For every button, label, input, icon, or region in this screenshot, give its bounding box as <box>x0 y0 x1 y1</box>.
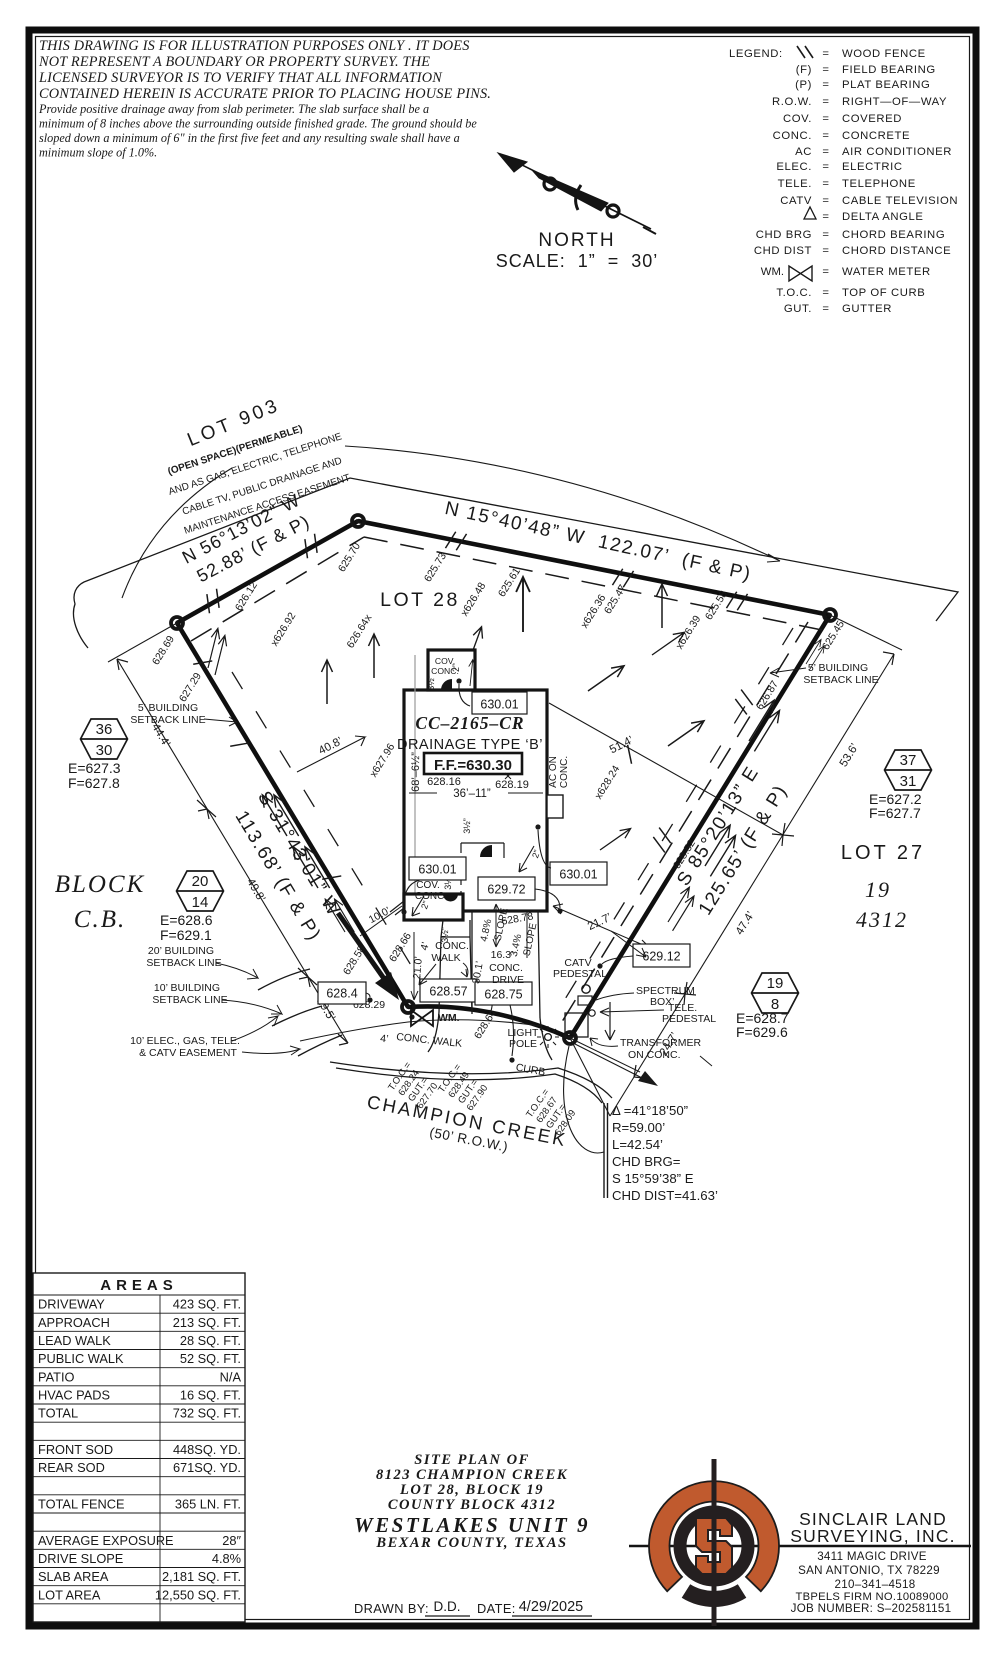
svg-text:36’–11”: 36’–11” <box>453 788 491 800</box>
svg-text:ELEC.: ELEC. <box>776 161 812 173</box>
svg-text:Δ =41°18’50”: Δ =41°18’50” <box>612 1103 688 1118</box>
svg-text:SAN ANTONIO, TX 78229: SAN ANTONIO, TX 78229 <box>798 1564 940 1577</box>
svg-text:CONC.: CONC. <box>415 891 447 902</box>
svg-text:WATER METER: WATER METER <box>842 266 931 278</box>
svg-text:WESTLAKES UNIT 9: WESTLAKES UNIT 9 <box>354 1513 590 1537</box>
svg-text:sloped down a minimum of 6" in: sloped down a minimum of 6" in the first… <box>39 131 460 145</box>
svg-text:LEGEND:: LEGEND: <box>729 48 783 60</box>
svg-text:4/29/2025: 4/29/2025 <box>519 1599 584 1615</box>
svg-text:CABLE TELEVISION: CABLE TELEVISION <box>842 195 958 207</box>
svg-text:28″: 28″ <box>222 1533 241 1548</box>
svg-text:SETBACK LINE: SETBACK LINE <box>146 957 221 969</box>
svg-text:APPROACH: APPROACH <box>38 1315 110 1330</box>
svg-text:LICENSED SURVEYOR IS TO VERIFY: LICENSED SURVEYOR IS TO VERIFY THAT ALL … <box>38 70 443 86</box>
svg-text:Provide positive drainage away: Provide positive drainage away from slab… <box>38 102 429 116</box>
svg-text:F.F.=630.30: F.F.=630.30 <box>434 757 512 774</box>
svg-text:=: = <box>822 266 829 278</box>
svg-text:SLAB AREA: SLAB AREA <box>38 1569 109 1584</box>
svg-text:AC: AC <box>795 146 812 158</box>
svg-text:RIGHT—OF—WAY: RIGHT—OF—WAY <box>842 96 947 108</box>
svg-text:28 SQ. FT.: 28 SQ. FT. <box>180 1333 241 1348</box>
svg-text:LOT 28, BLOCK 19: LOT 28, BLOCK 19 <box>399 1482 544 1498</box>
svg-text:20: 20 <box>192 873 209 890</box>
svg-text:ON CONC.: ON CONC. <box>628 1049 681 1061</box>
svg-text:CHD DIST=41.63’: CHD DIST=41.63’ <box>612 1188 718 1203</box>
svg-text:=: = <box>822 287 829 299</box>
svg-text:2”: 2” <box>451 664 461 672</box>
svg-text:(P): (P) <box>795 79 812 91</box>
svg-text:630.01: 630.01 <box>418 863 456 877</box>
svg-text:F=629.6: F=629.6 <box>736 1024 788 1040</box>
svg-text:F=627.7: F=627.7 <box>869 805 921 821</box>
svg-text:628.19: 628.19 <box>495 779 529 791</box>
svg-text:=: = <box>822 161 829 173</box>
svg-text:T.O.C.: T.O.C. <box>776 287 812 299</box>
svg-text:F=627.8: F=627.8 <box>68 775 120 791</box>
svg-text:N/A: N/A <box>220 1369 242 1384</box>
svg-text:423 SQ. FT.: 423 SQ. FT. <box>173 1297 241 1312</box>
svg-text:DRAINAGE TYPE ‘B’: DRAINAGE TYPE ‘B’ <box>397 737 543 753</box>
svg-text:COV.: COV. <box>783 113 812 125</box>
svg-text:=: = <box>822 113 829 125</box>
svg-text:=: = <box>822 64 829 76</box>
svg-text:AVERAGE EXPOSURE: AVERAGE EXPOSURE <box>38 1533 174 1548</box>
svg-text:SITE PLAN OF: SITE PLAN OF <box>414 1452 530 1468</box>
svg-text:=: = <box>822 130 829 142</box>
svg-text:CHD DIST: CHD DIST <box>754 245 812 257</box>
svg-text:LEAD WALK: LEAD WALK <box>38 1333 111 1348</box>
svg-text:2,181 SQ. FT.: 2,181 SQ. FT. <box>162 1569 241 1584</box>
svg-text:37: 37 <box>900 752 917 769</box>
svg-text:628.57: 628.57 <box>429 985 467 999</box>
svg-text:F=629.1: F=629.1 <box>160 927 212 943</box>
svg-text:DRIVE SLOPE: DRIVE SLOPE <box>38 1551 123 1566</box>
svg-text:12,550 SQ. FT.: 12,550 SQ. FT. <box>155 1587 241 1602</box>
svg-text:AIR CONDITIONER: AIR CONDITIONER <box>842 146 952 158</box>
svg-text:SETBACK LINE: SETBACK LINE <box>130 714 205 726</box>
svg-text:CATV: CATV <box>780 195 812 207</box>
svg-text:CONC.: CONC. <box>773 130 812 142</box>
svg-text:L=42.54’: L=42.54’ <box>612 1137 663 1152</box>
svg-text:COVERED: COVERED <box>842 113 902 125</box>
svg-text:TRANSFORMER: TRANSFORMER <box>620 1037 702 1049</box>
svg-text:WOOD FENCE: WOOD FENCE <box>842 48 926 60</box>
svg-text:DRIVEWAY: DRIVEWAY <box>38 1297 105 1312</box>
svg-text:PLAT BEARING: PLAT BEARING <box>842 79 930 91</box>
svg-text:21.0’: 21.0’ <box>411 956 425 980</box>
svg-text:GUT.: GUT. <box>784 303 812 315</box>
svg-text:& CATV EASEMENT: & CATV EASEMENT <box>139 1047 237 1059</box>
svg-text:628.75: 628.75 <box>484 988 522 1002</box>
svg-text:629.72: 629.72 <box>487 883 525 897</box>
svg-text:REAR SOD: REAR SOD <box>38 1460 105 1475</box>
svg-text:CONCRETE: CONCRETE <box>842 130 910 142</box>
svg-text:TOTAL FENCE: TOTAL FENCE <box>38 1497 125 1512</box>
svg-text:SETBACK LINE: SETBACK LINE <box>803 674 878 686</box>
svg-text:TELEPHONE: TELEPHONE <box>842 178 916 190</box>
svg-text:ELECTRIC: ELECTRIC <box>842 161 903 173</box>
svg-text:=: = <box>822 211 829 223</box>
svg-text:GUTTER: GUTTER <box>842 303 892 315</box>
svg-text:PEDESTAL: PEDESTAL <box>553 968 607 980</box>
svg-text:14: 14 <box>192 894 209 911</box>
svg-text:TOP OF CURB: TOP OF CURB <box>842 287 925 299</box>
svg-text:AC ON: AC ON <box>548 756 559 788</box>
svg-text:3411 MAGIC DRIVE: 3411 MAGIC DRIVE <box>817 1550 927 1563</box>
svg-text:=: = <box>822 48 829 60</box>
svg-text:PEDESTAL: PEDESTAL <box>662 1013 716 1025</box>
svg-text:WM.: WM. <box>438 1012 460 1024</box>
svg-text:CONTAINED HEREIN IS ACCURATE P: CONTAINED HEREIN IS ACCURATE PRIOR TO PL… <box>39 86 491 102</box>
svg-text:3½”: 3½” <box>426 675 436 691</box>
svg-text:10’ ELEC., GAS, TELE.: 10’ ELEC., GAS, TELE. <box>130 1035 240 1047</box>
svg-text:CC–2165–CR: CC–2165–CR <box>415 713 524 733</box>
svg-text:CHD BRG=: CHD BRG= <box>612 1154 681 1169</box>
svg-text:SETBACK LINE: SETBACK LINE <box>152 994 227 1006</box>
svg-text:=: = <box>822 96 829 108</box>
svg-text:D.D.: D.D. <box>434 1599 461 1614</box>
svg-text:5’ BUILDING: 5’ BUILDING <box>808 662 868 674</box>
svg-text:4312: 4312 <box>856 907 908 932</box>
svg-text:COV.: COV. <box>416 880 440 891</box>
svg-text:minimum of 8 inches above the: minimum of 8 inches above the surroundin… <box>39 117 477 131</box>
svg-text:CONC.: CONC. <box>435 940 469 952</box>
svg-text:CHORD BEARING: CHORD BEARING <box>842 229 945 241</box>
svg-text:=: = <box>822 195 829 207</box>
svg-text:CHD BRG: CHD BRG <box>756 229 812 241</box>
svg-text:5’ BUILDING: 5’ BUILDING <box>138 702 198 714</box>
svg-text:4’: 4’ <box>380 1033 389 1046</box>
svg-text:52 SQ. FT.: 52 SQ. FT. <box>180 1351 241 1366</box>
svg-text:THIS DRAWING IS FOR ILLUSTRATI: THIS DRAWING IS FOR ILLUSTRATION PURPOSE… <box>39 38 470 54</box>
svg-text:(F): (F) <box>796 64 812 76</box>
svg-text:36: 36 <box>96 721 113 738</box>
svg-text:LOT 27: LOT 27 <box>841 842 925 864</box>
svg-text:628.4: 628.4 <box>326 987 357 1001</box>
svg-text:16 SQ. FT.: 16 SQ. FT. <box>180 1388 241 1403</box>
svg-text:POLE: POLE <box>509 1038 537 1050</box>
svg-text:WALK: WALK <box>431 952 460 964</box>
svg-text:minimum slope of 1.0%.: minimum slope of 1.0%. <box>39 146 157 160</box>
svg-text:=: = <box>822 178 829 190</box>
svg-text:C.B.: C.B. <box>74 906 126 933</box>
svg-text:628.16: 628.16 <box>427 776 461 788</box>
svg-text:CONC.: CONC. <box>489 962 523 974</box>
svg-text:19: 19 <box>767 975 784 992</box>
svg-text:448SQ. YD.: 448SQ. YD. <box>173 1442 241 1457</box>
svg-text:365 LN. FT.: 365 LN. FT. <box>175 1497 241 1512</box>
svg-text:68’–6½”: 68’–6½” <box>410 752 422 792</box>
svg-text:20’ BUILDING: 20’ BUILDING <box>148 945 214 957</box>
svg-text:DRAWN BY:: DRAWN BY: <box>354 1601 429 1616</box>
svg-text:BLOCK: BLOCK <box>55 871 146 898</box>
svg-text:210–341–4518: 210–341–4518 <box>835 1578 916 1591</box>
svg-text:10’ BUILDING: 10’ BUILDING <box>154 982 220 994</box>
svg-text:3½”: 3½” <box>462 818 472 834</box>
svg-text:BEXAR COUNTY, TEXAS: BEXAR COUNTY, TEXAS <box>375 1535 567 1551</box>
svg-text:DATE:: DATE: <box>477 1601 516 1616</box>
svg-text:DELTA ANGLE: DELTA ANGLE <box>842 211 924 223</box>
svg-text:WM.: WM. <box>761 266 784 278</box>
svg-text:630.01: 630.01 <box>559 868 597 882</box>
svg-text:8123 CHAMPION CREEK: 8123 CHAMPION CREEK <box>376 1467 568 1483</box>
svg-text:4.8%: 4.8% <box>212 1551 241 1566</box>
svg-text:FRONT SOD: FRONT SOD <box>38 1442 113 1457</box>
svg-text:HVAC PADS: HVAC PADS <box>38 1388 110 1403</box>
svg-text:=: = <box>822 79 829 91</box>
svg-text:AREAS: AREAS <box>100 1277 178 1294</box>
svg-text:R.O.W.: R.O.W. <box>772 96 812 108</box>
svg-text:DRIVE: DRIVE <box>492 974 524 986</box>
svg-text:SCALE: 1” = 30’: SCALE: 1” = 30’ <box>496 251 659 271</box>
svg-text:19: 19 <box>865 877 891 902</box>
svg-text:COUNTY BLOCK 4312: COUNTY BLOCK 4312 <box>388 1497 556 1513</box>
svg-text:732 SQ. FT.: 732 SQ. FT. <box>173 1406 241 1421</box>
svg-text:629.12: 629.12 <box>642 950 680 964</box>
svg-text:E=628.6: E=628.6 <box>160 912 213 928</box>
svg-text:JOB NUMBER: S–202581151: JOB NUMBER: S–202581151 <box>791 1602 952 1615</box>
svg-text:=: = <box>822 229 829 241</box>
svg-text:S 15°59’38” E: S 15°59’38” E <box>612 1171 694 1186</box>
svg-text:SURVEYING, INC.: SURVEYING, INC. <box>790 1526 956 1546</box>
svg-text:213 SQ. FT.: 213 SQ. FT. <box>173 1315 241 1330</box>
svg-text:630.01: 630.01 <box>480 698 518 712</box>
svg-text:671SQ. YD.: 671SQ. YD. <box>173 1460 241 1475</box>
svg-text:LOT AREA: LOT AREA <box>38 1587 101 1602</box>
svg-text:30: 30 <box>96 742 113 759</box>
svg-text:LOT 28: LOT 28 <box>380 589 460 611</box>
svg-text:NOT REPRESENT A BOUNDARY OR PR: NOT REPRESENT A BOUNDARY OR PROPERTY SUR… <box>38 54 430 70</box>
svg-text:TELE.: TELE. <box>778 178 812 190</box>
svg-text:=: = <box>822 146 829 158</box>
svg-text:NORTH: NORTH <box>538 230 615 251</box>
svg-text:TOTAL: TOTAL <box>38 1406 78 1421</box>
svg-text:=: = <box>822 303 829 315</box>
svg-text:PUBLIC WALK: PUBLIC WALK <box>38 1351 124 1366</box>
svg-text:=: = <box>822 245 829 257</box>
svg-text:31: 31 <box>900 773 917 790</box>
svg-text:FIELD BEARING: FIELD BEARING <box>842 64 936 76</box>
svg-text:PATIO: PATIO <box>38 1369 75 1384</box>
svg-text:CHORD DISTANCE: CHORD DISTANCE <box>842 245 951 257</box>
svg-text:CONC.: CONC. <box>559 756 570 788</box>
svg-text:E=627.3: E=627.3 <box>68 760 121 776</box>
svg-text:R=59.00’: R=59.00’ <box>612 1120 665 1135</box>
